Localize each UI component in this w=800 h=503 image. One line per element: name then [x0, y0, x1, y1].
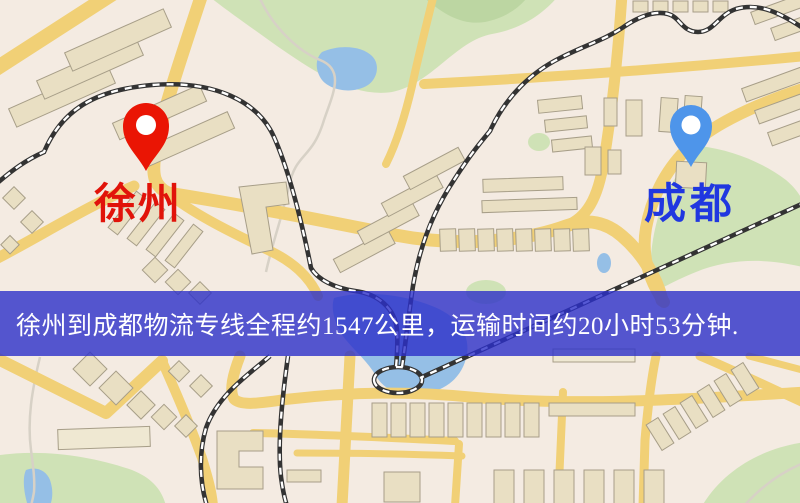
- route-info-text: 徐州到成都物流专线全程约1547公里，运输时间约20小时53分钟.: [16, 306, 739, 342]
- info-banner: 徐州到成都物流专线全程约1547公里，运输时间约20小时53分钟.: [0, 291, 800, 356]
- origin-label: 徐州: [93, 181, 182, 228]
- map-canvas[interactable]: 徐州 成都: [0, 0, 800, 503]
- origin-pin-hole: [136, 115, 156, 135]
- destination-label: 成都: [644, 181, 736, 228]
- destination-pin-hole: [682, 116, 701, 135]
- logistics-route-map: 徐州 成都 徐州到成都物流专线全程约1547公里，运输时间约20小时53分钟.: [0, 0, 800, 503]
